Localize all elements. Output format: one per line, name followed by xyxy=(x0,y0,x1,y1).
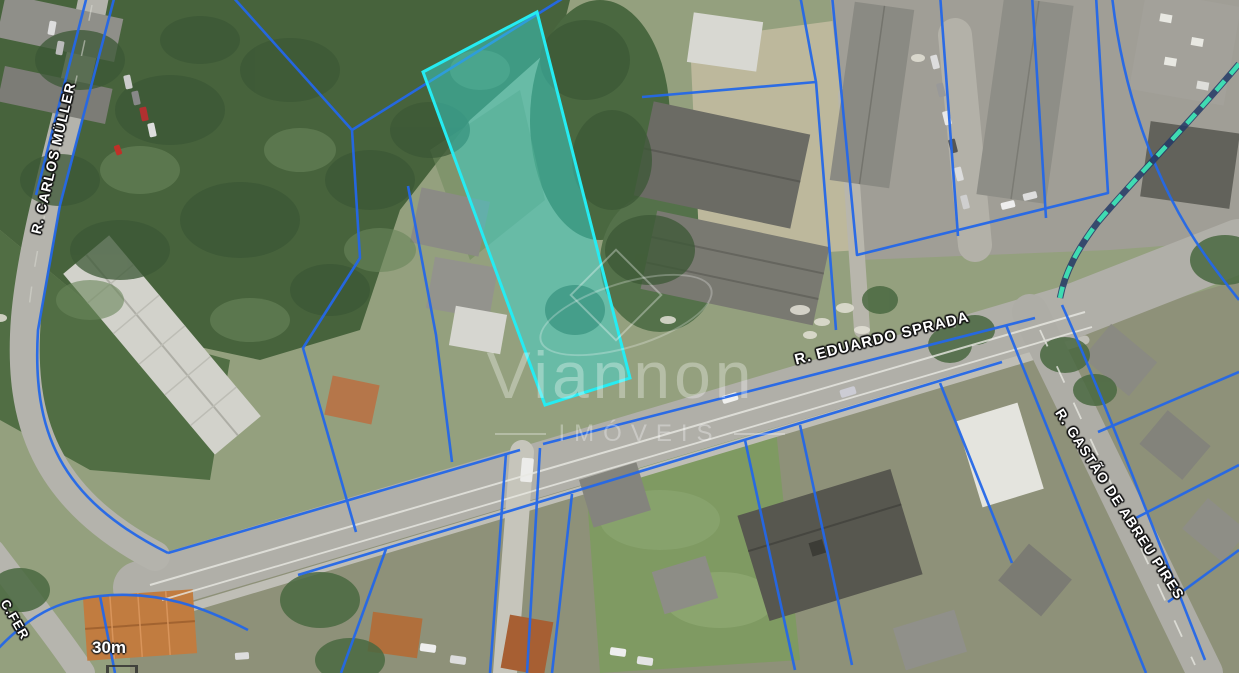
map-viewport: R. CARLOS MÜLLER R. EDUARDO SPRADA R. GA… xyxy=(0,0,1239,673)
aerial-map-canvas[interactable] xyxy=(0,0,1239,673)
